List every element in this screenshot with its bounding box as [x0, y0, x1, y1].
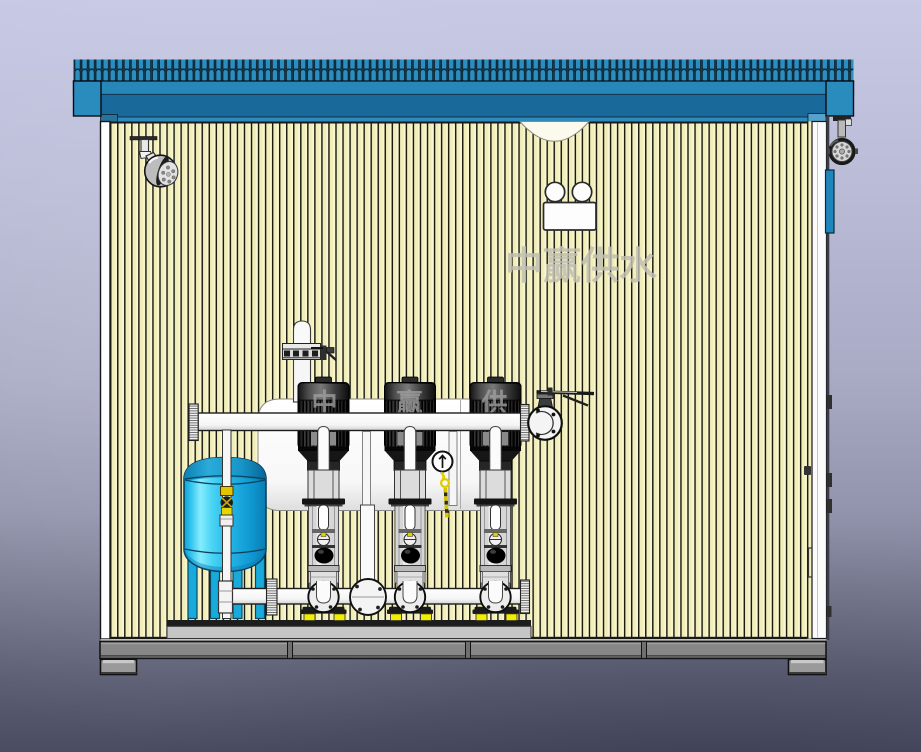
- svg-text:中赢供水: 中赢供水: [505, 245, 658, 288]
